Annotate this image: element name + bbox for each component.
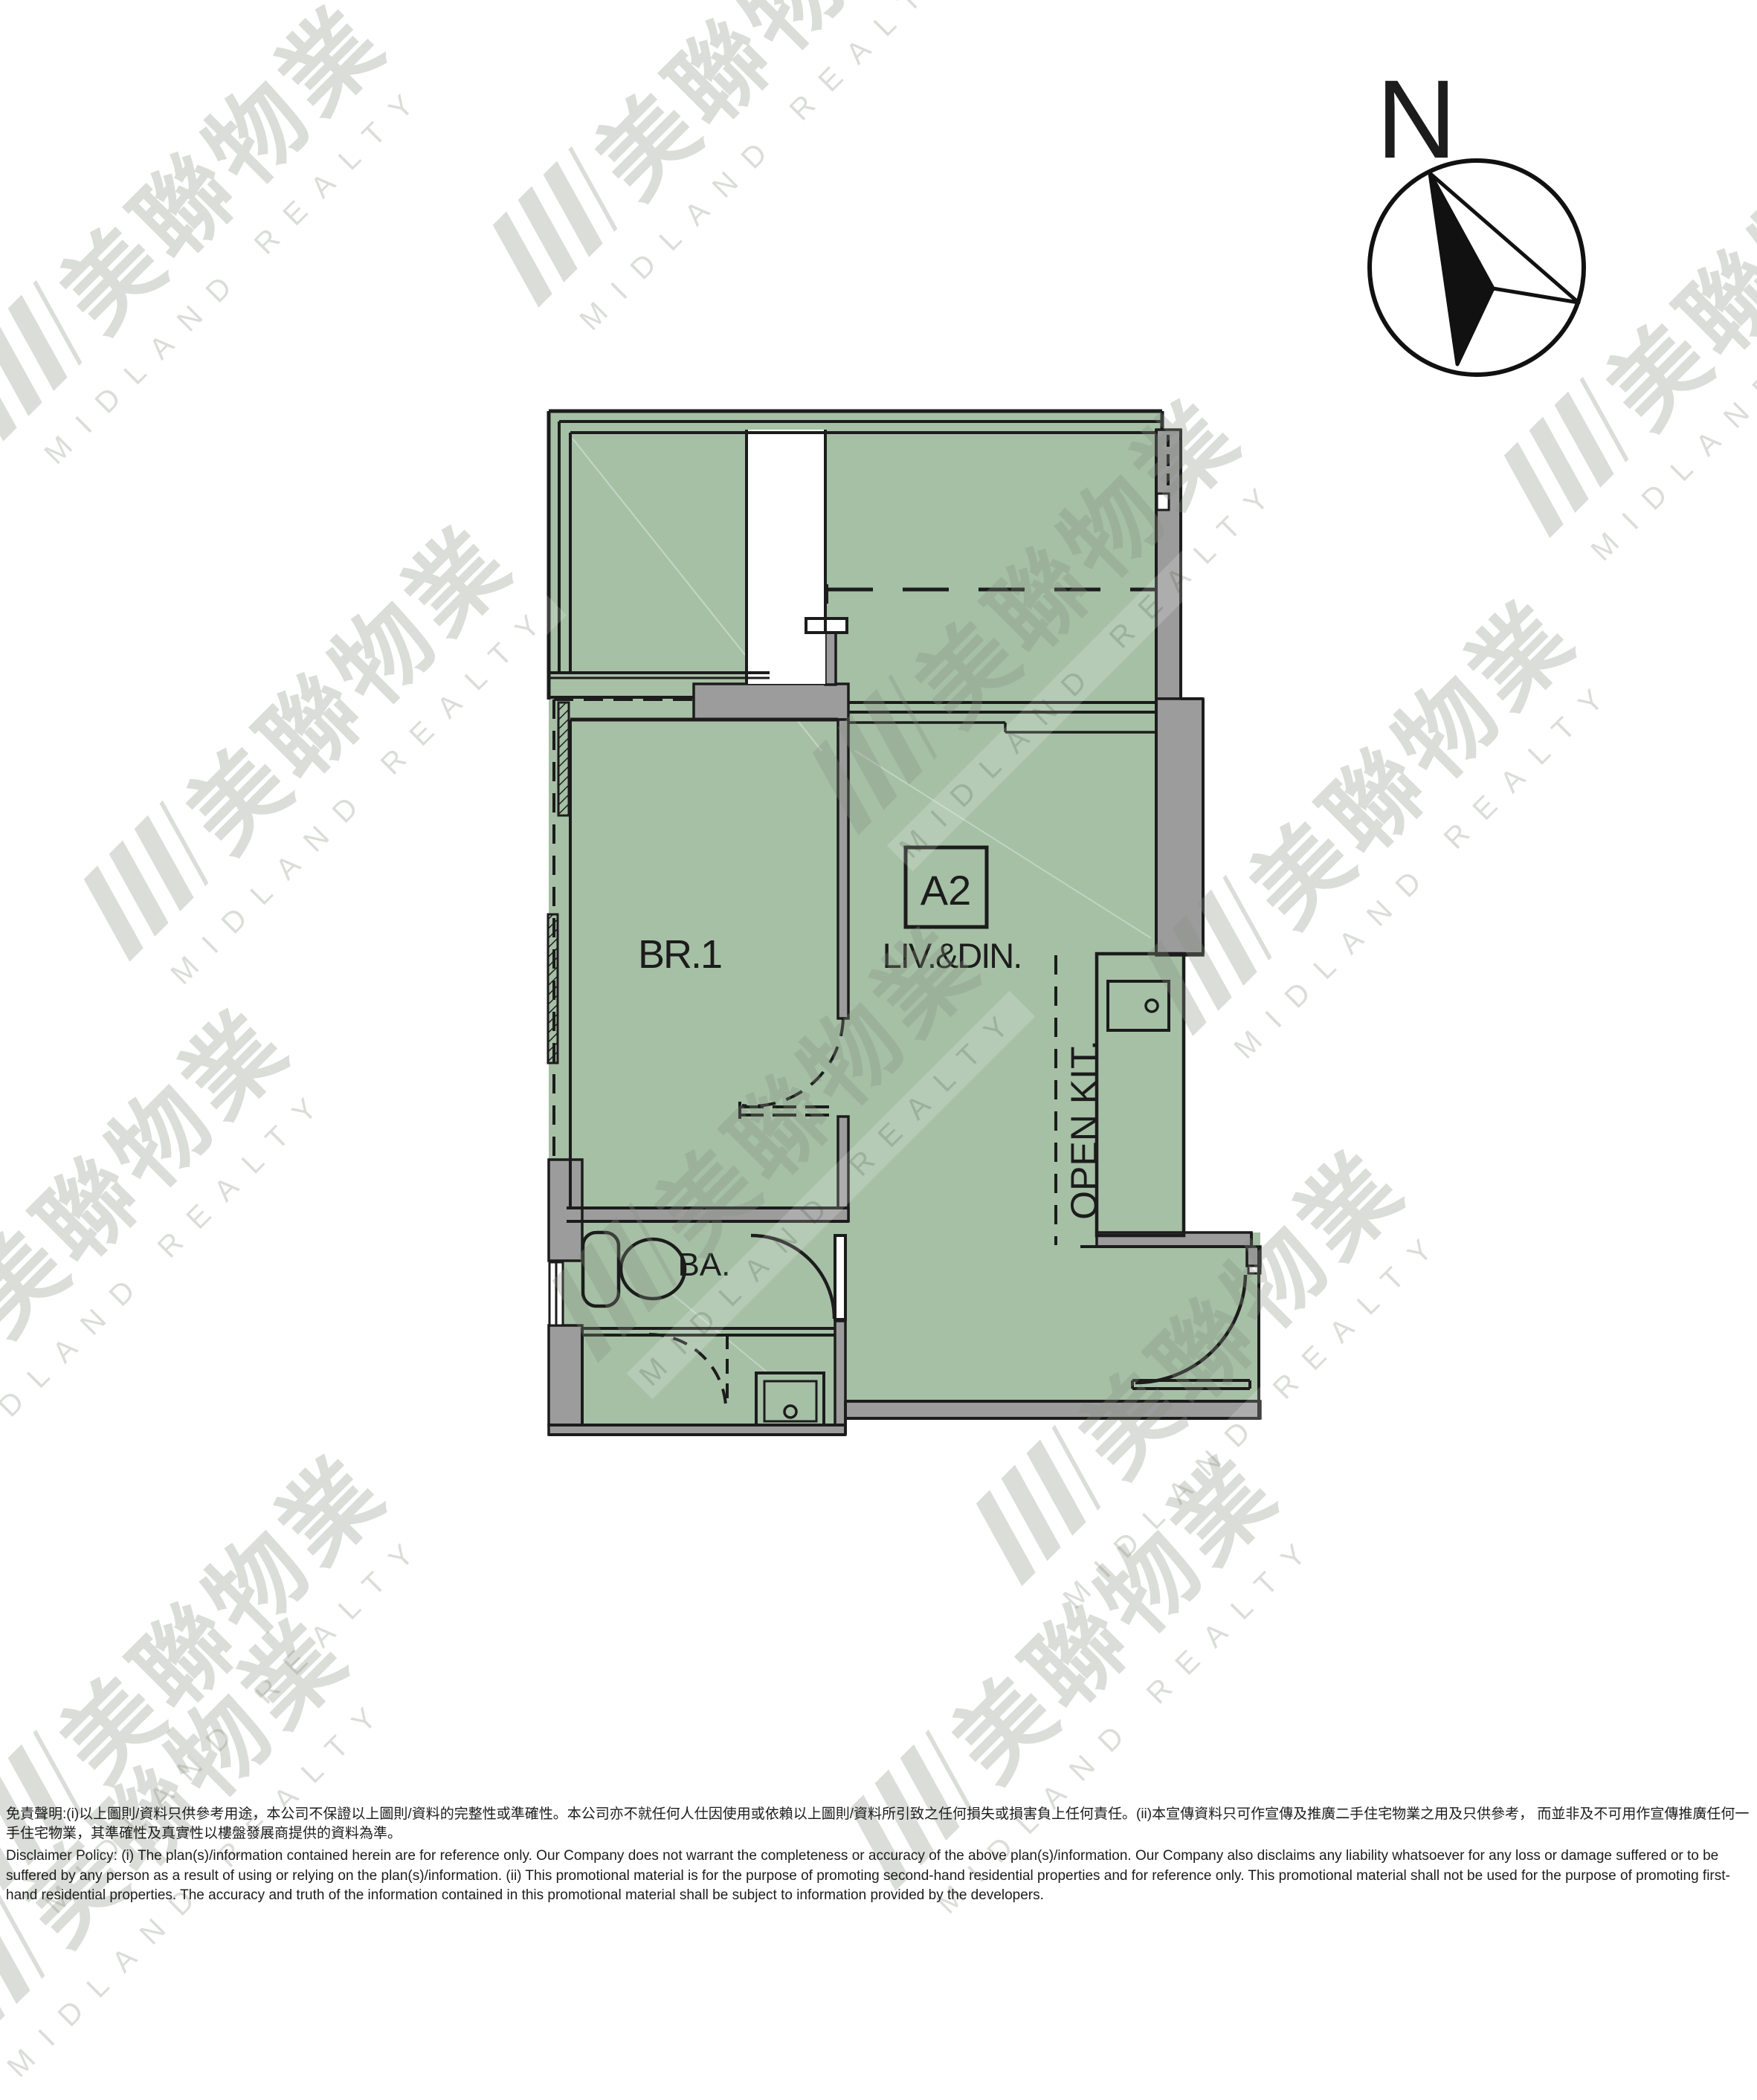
wall-bottom [845, 1401, 1260, 1418]
disclaimer-en: Disclaimer Policy: (i) The plan(s)/infor… [6, 1847, 1751, 1905]
disclaimer: 免責聲明:(i)以上圖則/資料只供參考用途，本公司不保證以上圖則/資料的完整性或… [6, 1805, 1751, 1908]
open-kitchen-label: OPEN KIT. [1063, 1040, 1105, 1220]
compass: N [1370, 56, 1584, 375]
wall-strip-edge [825, 633, 836, 685]
bedroom-label: BR.1 [638, 932, 721, 977]
unit-label: A2 [921, 867, 972, 914]
floor-plan: BR.1 A2 LIV.&DIN. OPEN KIT. BA. N [0, 0, 1757, 1903]
wall-divider-br1 [838, 720, 848, 1018]
lightwell-void [747, 430, 825, 684]
window-hatch-2 [548, 914, 558, 1063]
wall-left-block-1 [549, 1160, 582, 1261]
wall-left-block-2 [549, 1325, 582, 1425]
wall-ba-lower [835, 1321, 845, 1425]
living-dining-label: LIV.&DIN. [883, 936, 1022, 975]
wall-right-mid [1156, 699, 1203, 955]
wall-ba-top [567, 1208, 848, 1221]
bathroom-label: BA. [678, 1247, 731, 1283]
wall-slab [694, 684, 848, 720]
window-hatch-1 [558, 702, 569, 815]
midland-logo-icon [0, 1893, 45, 2054]
wall-ba-upper [838, 1117, 848, 1221]
ba-door-leaf [835, 1235, 845, 1319]
wall-right-upper [1156, 430, 1181, 699]
toilet-tank [583, 1232, 619, 1306]
disclaimer-zh: 免責聲明:(i)以上圖則/資料只供參考用途，本公司不保證以上圖則/資料的完整性或… [6, 1805, 1751, 1844]
page: { "plan": { "unit_label": "A2", "rooms":… [0, 0, 1757, 1903]
toilet-bowl [621, 1239, 685, 1299]
north-label: N [1376, 56, 1457, 181]
notch-top-right [1157, 494, 1169, 510]
